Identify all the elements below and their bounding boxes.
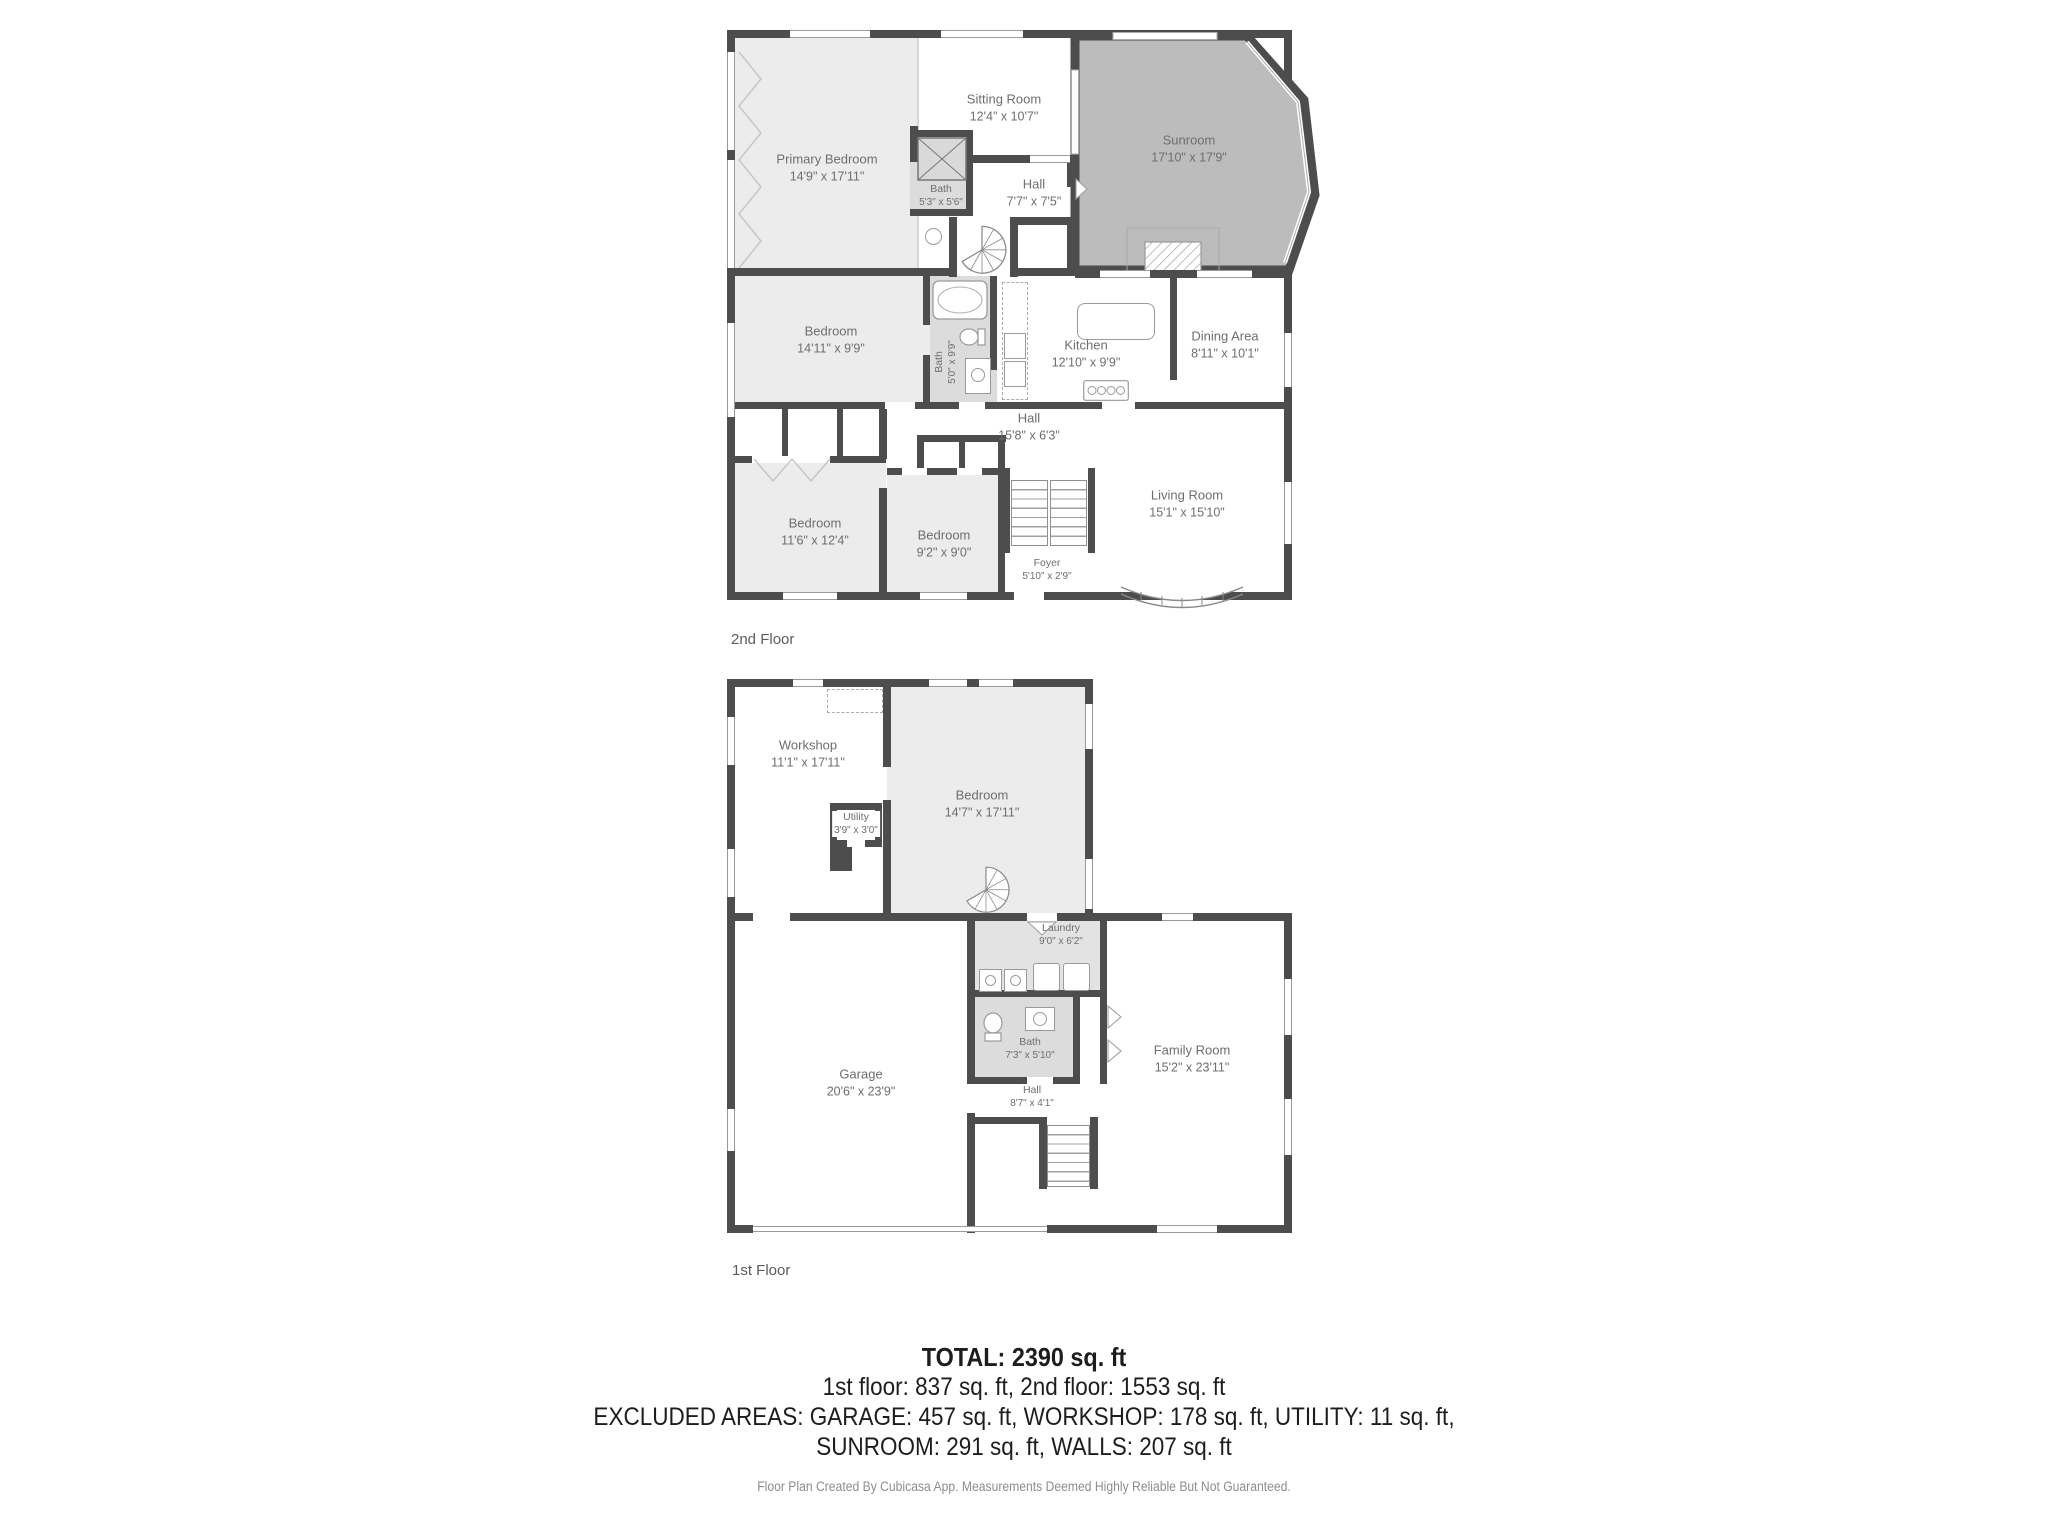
door-swing-icon bbox=[1075, 178, 1089, 200]
closet-doors-icon bbox=[737, 52, 763, 268]
closet-doors-icon bbox=[754, 457, 832, 483]
entry-door-opening bbox=[1014, 592, 1044, 600]
window bbox=[1085, 859, 1093, 909]
floor-plan-page: Primary Bedroom 14'9" x 17'11" Sitting R… bbox=[0, 0, 2048, 1536]
window bbox=[941, 30, 1023, 38]
excluded-areas-line2: SUNROOM: 291 sq. ft, WALLS: 207 sq. ft bbox=[102, 1432, 1945, 1462]
room-label-sunroom: Sunroom 17'10" x 17'9" bbox=[1151, 132, 1227, 167]
disclaimer: Floor Plan Created By Cubicasa App. Meas… bbox=[102, 1479, 1945, 1494]
kitchen-sink-icon bbox=[1004, 361, 1026, 387]
toilet-icon bbox=[959, 326, 987, 348]
total-area: TOTAL: 2390 sq. ft bbox=[102, 1342, 1945, 1372]
floor-label-1st: 1st Floor bbox=[732, 1262, 790, 1279]
bow-window bbox=[1117, 584, 1247, 624]
stairs bbox=[1011, 480, 1048, 546]
window bbox=[1284, 1099, 1292, 1155]
kitchen-sink-icon bbox=[1004, 333, 1026, 359]
sink-icon bbox=[971, 368, 985, 382]
room-label-utility: Utility 3'9" x 3'0" bbox=[832, 811, 880, 837]
excluded-areas-line1: EXCLUDED AREAS: GARAGE: 457 sq. ft, WORK… bbox=[102, 1402, 1945, 1432]
room-label-bedroom-small: Bedroom 9'2" x 9'0" bbox=[917, 527, 972, 562]
window bbox=[1284, 482, 1292, 544]
room-label-hall-upper: Hall 7'7" x 7'5" bbox=[1007, 176, 1062, 211]
sink-icon bbox=[1033, 1012, 1047, 1026]
window bbox=[727, 849, 735, 897]
door-opening bbox=[753, 913, 790, 921]
window bbox=[727, 160, 735, 268]
spiral-staircase-icon bbox=[955, 220, 1009, 276]
garage-door bbox=[753, 1226, 1047, 1232]
window bbox=[1085, 704, 1093, 749]
window bbox=[727, 323, 735, 417]
area-summary: TOTAL: 2390 sq. ft 1st floor: 837 sq. ft… bbox=[102, 1342, 1945, 1494]
window bbox=[1157, 1225, 1217, 1233]
sink-icon bbox=[985, 975, 996, 986]
kitchen-island bbox=[1077, 303, 1155, 340]
floor-label-2nd: 2nd Floor bbox=[731, 631, 794, 648]
room-label-hall-main: Hall 15'8" x 6'3" bbox=[998, 410, 1060, 445]
storage-area bbox=[827, 689, 883, 713]
room-label-primary-bedroom: Primary Bedroom 14'9" x 17'11" bbox=[776, 151, 877, 186]
room-label-bath-small: Bath 5'3" x 5'6" bbox=[919, 183, 963, 209]
room-label-dining: Dining Area 8'11" x 10'1" bbox=[1191, 328, 1259, 363]
window bbox=[929, 679, 967, 687]
window bbox=[727, 717, 735, 765]
floor-areas: 1st floor: 837 sq. ft, 2nd floor: 1553 s… bbox=[102, 1372, 1945, 1402]
room-label-foyer: Foyer 5'10" x 2'9" bbox=[1022, 557, 1071, 583]
room-label-family-room: Family Room 15'2" x 23'11" bbox=[1154, 1042, 1231, 1077]
room-label-bedroom-left: Bedroom 11'6" x 12'4" bbox=[781, 515, 849, 550]
room-label-workshop: Workshop 11'1" x 17'11" bbox=[771, 737, 845, 772]
window bbox=[1284, 979, 1292, 1035]
room-label-bedroom-mid: Bedroom 14'11" x 9'9" bbox=[797, 323, 865, 358]
room-label-bath: Bath 7'3" x 5'10" bbox=[1005, 1036, 1054, 1062]
door-swing-icon bbox=[1107, 1039, 1123, 1063]
window bbox=[790, 30, 870, 38]
room-label-living: Living Room 15'1" x 15'10" bbox=[1149, 487, 1225, 522]
shower-icon bbox=[917, 137, 967, 181]
dryer-icon bbox=[1063, 963, 1090, 991]
window bbox=[727, 52, 735, 150]
room-label-hall: Hall 8'7" x 4'1" bbox=[1010, 1084, 1054, 1110]
room-label-bath-main: Bath 5'0" x 9'9" bbox=[933, 340, 959, 384]
bathtub-icon bbox=[932, 280, 988, 320]
window bbox=[1284, 333, 1292, 387]
room-label-garage: Garage 20'6" x 23'9" bbox=[827, 1066, 896, 1101]
window bbox=[920, 592, 967, 600]
stairs bbox=[1047, 1125, 1090, 1187]
stairs bbox=[1050, 480, 1087, 546]
door-opening bbox=[1027, 1077, 1053, 1084]
door-swing-icon bbox=[1107, 1005, 1123, 1029]
sink-icon bbox=[925, 228, 942, 245]
window bbox=[727, 1109, 735, 1151]
window bbox=[793, 679, 823, 687]
room-label-laundry: Laundry 9'0" x 6'2" bbox=[1039, 922, 1083, 948]
toilet-icon bbox=[981, 1011, 1005, 1043]
stove-icon bbox=[1083, 380, 1129, 401]
room-label-sitting-room: Sitting Room 12'4" x 10'7" bbox=[967, 91, 1041, 126]
window bbox=[1030, 155, 1070, 163]
room-label-bedroom: Bedroom 14'7" x 17'11" bbox=[945, 787, 1020, 822]
spiral-staircase-icon bbox=[960, 861, 1012, 915]
door-opening bbox=[1027, 913, 1057, 921]
floor-plan-2nd: Primary Bedroom 14'9" x 17'11" Sitting R… bbox=[727, 30, 1332, 605]
window bbox=[783, 592, 837, 600]
window bbox=[1197, 270, 1252, 278]
washer-icon bbox=[1033, 963, 1060, 991]
sink-icon bbox=[1010, 975, 1021, 986]
floor-plan-1st: Workshop 11'1" x 17'11" Bedroom 14'7" x … bbox=[727, 679, 1302, 1241]
window bbox=[1162, 913, 1193, 921]
room-label-kitchen: Kitchen 12'10" x 9'9" bbox=[1052, 337, 1121, 372]
window bbox=[979, 679, 1013, 687]
window bbox=[1100, 270, 1150, 278]
